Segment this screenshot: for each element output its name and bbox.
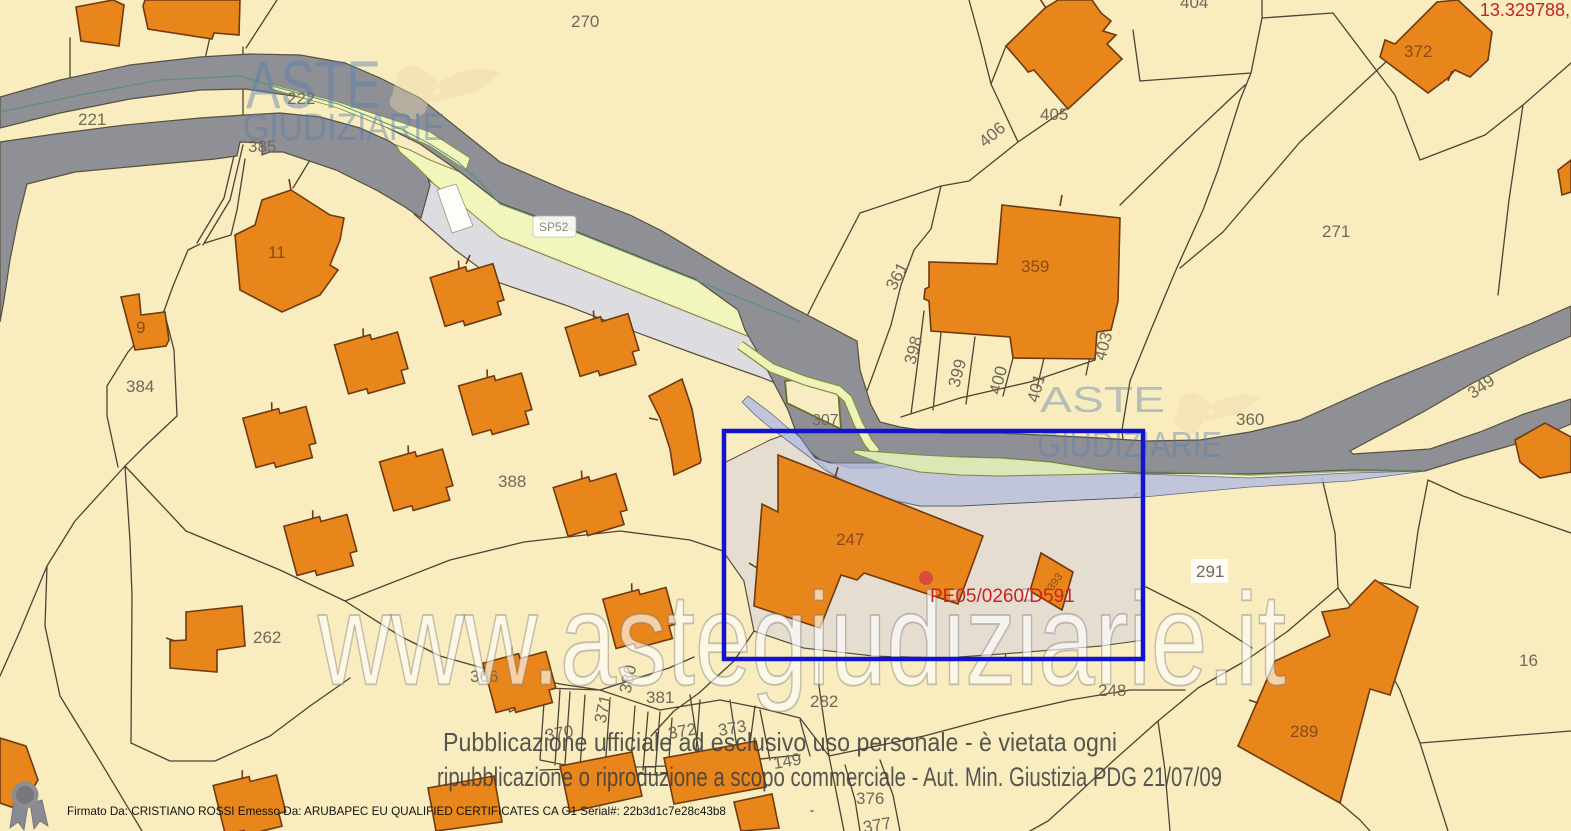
svg-text:GIUDIZIARIE: GIUDIZIARIE — [243, 107, 445, 149]
svg-text:384: 384 — [126, 377, 154, 396]
svg-text:Firmato Da: CRISTIANO ROSSI Em: Firmato Da: CRISTIANO ROSSI Emesso Da: A… — [67, 805, 726, 818]
svg-text:PE05/0260/D591: PE05/0260/D591 — [930, 586, 1075, 607]
svg-text:404: 404 — [1180, 0, 1208, 12]
svg-text:221: 221 — [78, 110, 106, 129]
svg-text:ASTE: ASTE — [1040, 379, 1165, 420]
svg-text:289: 289 — [1290, 722, 1318, 741]
svg-text:307: 307 — [812, 412, 839, 429]
svg-text:9: 9 — [136, 318, 145, 337]
svg-text:247: 247 — [836, 530, 864, 549]
svg-text:262: 262 — [253, 628, 281, 647]
svg-text:11: 11 — [268, 243, 286, 262]
svg-text:270: 270 — [571, 12, 599, 31]
svg-text:13.329788,: 13.329788, — [1480, 0, 1570, 20]
svg-text:372: 372 — [1404, 42, 1432, 61]
svg-text:ripubblicazione o riproduzione: ripubblicazione o riproduzione a scopo c… — [437, 762, 1222, 792]
svg-text:405: 405 — [1040, 105, 1068, 124]
svg-text:359: 359 — [1021, 257, 1049, 276]
svg-text:16: 16 — [1519, 651, 1538, 670]
svg-text:-: - — [810, 803, 814, 817]
svg-text:388: 388 — [498, 472, 526, 491]
svg-text:Pubblicazione ufficiale ad esc: Pubblicazione ufficiale ad esclusivo uso… — [443, 727, 1117, 757]
svg-text:SP52: SP52 — [539, 220, 569, 234]
svg-text:www.astegiudiziarie.it: www.astegiudiziarie.it — [317, 566, 1286, 713]
svg-text:271: 271 — [1322, 222, 1350, 241]
